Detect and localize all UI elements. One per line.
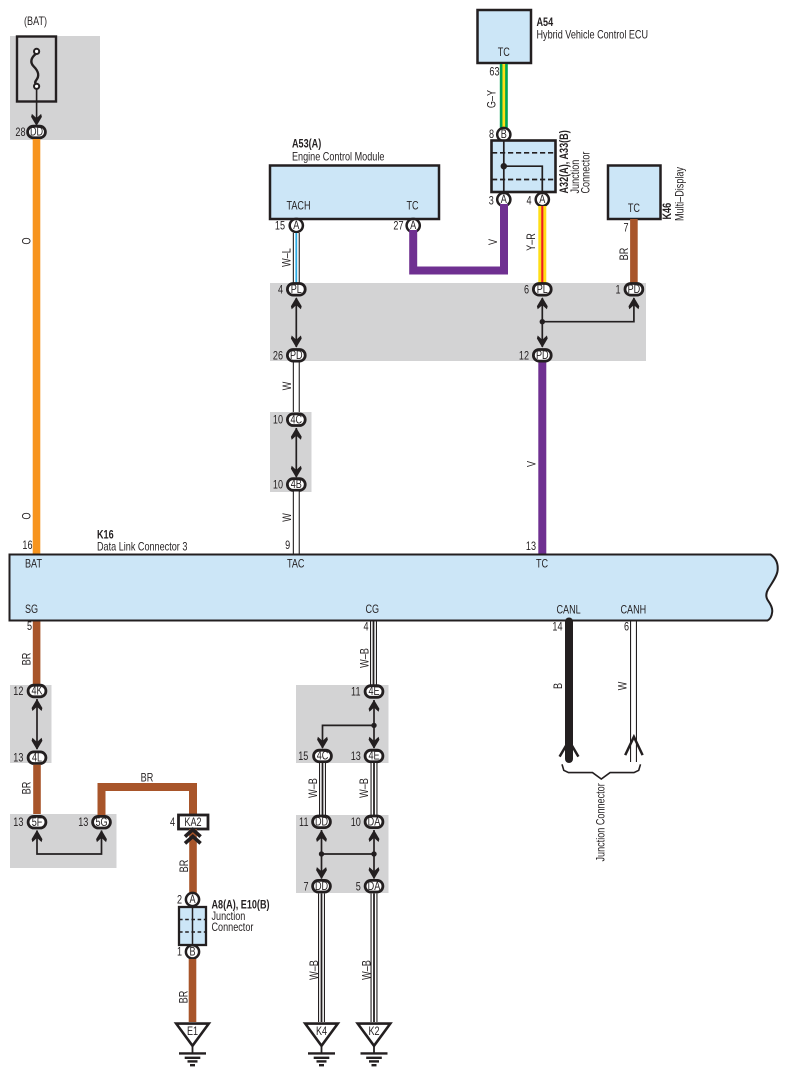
svg-text:W–B: W–B xyxy=(362,960,374,980)
svg-text:5: 5 xyxy=(356,882,361,894)
svg-text:Connector: Connector xyxy=(581,151,593,193)
svg-text:6: 6 xyxy=(524,284,529,296)
svg-text:13: 13 xyxy=(526,541,536,553)
svg-text:B: B xyxy=(553,683,565,689)
svg-text:4E: 4E xyxy=(368,686,379,698)
svg-text:16: 16 xyxy=(22,540,32,552)
svg-text:15: 15 xyxy=(275,221,285,233)
svg-text:CG: CG xyxy=(366,604,380,616)
svg-text:28: 28 xyxy=(15,127,25,139)
svg-text:Data Link Connector 3: Data Link Connector 3 xyxy=(97,542,188,554)
svg-text:K2: K2 xyxy=(368,1026,379,1038)
svg-text:TC: TC xyxy=(498,47,511,59)
svg-text:DA: DA xyxy=(368,817,381,829)
svg-text:BR: BR xyxy=(179,860,191,873)
svg-text:PL: PL xyxy=(291,284,302,296)
svg-text:4C: 4C xyxy=(317,751,329,763)
svg-text:TC: TC xyxy=(407,201,420,213)
svg-text:BR: BR xyxy=(619,248,631,261)
svg-text:Engine Control Module: Engine Control Module xyxy=(292,152,385,164)
svg-text:Multi–Display: Multi–Display xyxy=(675,166,687,221)
svg-text:W–L: W–L xyxy=(282,248,294,267)
svg-text:A: A xyxy=(293,220,299,232)
svg-text:TAC: TAC xyxy=(287,559,305,571)
svg-text:DD: DD xyxy=(315,817,328,829)
svg-text:E1: E1 xyxy=(187,1026,198,1038)
svg-text:Connector: Connector xyxy=(212,922,254,934)
svg-text:6: 6 xyxy=(624,622,629,634)
svg-text:W–B: W–B xyxy=(359,778,371,798)
svg-text:A54: A54 xyxy=(537,17,554,29)
svg-text:K4: K4 xyxy=(316,1026,327,1038)
svg-text:4K: 4K xyxy=(31,686,42,698)
svg-text:4: 4 xyxy=(278,284,283,296)
svg-text:G–Y: G–Y xyxy=(486,90,498,108)
svg-text:PD: PD xyxy=(628,284,641,296)
svg-text:PD: PD xyxy=(536,350,549,362)
svg-text:13: 13 xyxy=(78,817,88,829)
svg-text:W–B: W–B xyxy=(309,960,321,980)
svg-text:4: 4 xyxy=(170,817,175,829)
svg-text:14: 14 xyxy=(552,622,562,634)
svg-text:4C: 4C xyxy=(290,414,302,426)
svg-text:63: 63 xyxy=(489,67,499,79)
svg-text:B: B xyxy=(189,947,195,959)
svg-text:11: 11 xyxy=(351,687,361,699)
svg-text:W–B: W–B xyxy=(360,648,372,668)
svg-text:TC: TC xyxy=(628,203,641,215)
svg-text:W: W xyxy=(282,513,294,522)
svg-text:4: 4 xyxy=(526,195,531,207)
svg-text:W–B: W–B xyxy=(308,778,320,798)
svg-text:12: 12 xyxy=(13,686,23,698)
svg-text:BR: BR xyxy=(179,991,191,1004)
svg-text:10: 10 xyxy=(351,817,361,829)
svg-text:DD: DD xyxy=(30,127,43,139)
svg-text:A53(A): A53(A) xyxy=(292,139,321,151)
svg-text:1: 1 xyxy=(616,284,621,296)
svg-text:W: W xyxy=(617,682,629,691)
svg-text:5G: 5G xyxy=(95,817,107,829)
svg-text:1: 1 xyxy=(177,947,182,959)
svg-text:13: 13 xyxy=(13,817,23,829)
svg-text:Junction Connector: Junction Connector xyxy=(596,783,608,862)
svg-text:BR: BR xyxy=(21,782,33,795)
svg-text:5: 5 xyxy=(27,621,32,633)
svg-text:W: W xyxy=(282,382,294,391)
svg-text:A: A xyxy=(189,894,195,906)
svg-text:4: 4 xyxy=(363,622,368,634)
svg-text:V: V xyxy=(527,461,539,467)
svg-text:10: 10 xyxy=(273,480,283,492)
svg-text:26: 26 xyxy=(273,350,283,362)
svg-text:V: V xyxy=(488,239,500,245)
svg-text:27: 27 xyxy=(393,221,403,233)
svg-text:O: O xyxy=(21,237,33,244)
svg-text:2: 2 xyxy=(177,895,182,907)
svg-text:7: 7 xyxy=(623,223,628,235)
svg-text:BAT: BAT xyxy=(25,559,43,571)
svg-text:(BAT): (BAT) xyxy=(24,16,47,28)
svg-text:A: A xyxy=(539,194,545,206)
svg-text:TACH: TACH xyxy=(287,201,311,213)
svg-text:12: 12 xyxy=(519,350,529,362)
svg-text:PD: PD xyxy=(290,350,303,362)
svg-text:BR: BR xyxy=(141,773,154,785)
svg-text:TC: TC xyxy=(536,559,549,571)
svg-text:3: 3 xyxy=(489,195,494,207)
svg-text:DD: DD xyxy=(315,881,328,893)
svg-text:4B: 4B xyxy=(291,479,302,491)
svg-text:4L: 4L xyxy=(32,752,42,764)
svg-text:10: 10 xyxy=(273,415,283,427)
svg-text:CANH: CANH xyxy=(621,605,647,617)
svg-text:15: 15 xyxy=(298,751,308,763)
svg-text:DA: DA xyxy=(368,881,381,893)
svg-text:7: 7 xyxy=(303,882,308,894)
svg-text:Hybrid Vehicle Control ECU: Hybrid Vehicle Control ECU xyxy=(537,30,649,42)
svg-text:K16: K16 xyxy=(97,530,114,542)
svg-text:Y–R: Y–R xyxy=(526,233,538,251)
svg-text:CANL: CANL xyxy=(557,605,581,617)
svg-text:SG: SG xyxy=(25,604,38,616)
svg-text:11: 11 xyxy=(299,817,309,829)
svg-text:BR: BR xyxy=(21,653,33,666)
svg-text:13: 13 xyxy=(351,751,361,763)
svg-text:13: 13 xyxy=(13,753,23,765)
svg-text:O: O xyxy=(21,512,33,519)
svg-text:4E: 4E xyxy=(368,751,379,763)
svg-text:9: 9 xyxy=(285,540,290,552)
svg-text:K46: K46 xyxy=(662,203,674,220)
svg-text:5F: 5F xyxy=(32,817,43,829)
svg-text:PL: PL xyxy=(537,284,548,296)
